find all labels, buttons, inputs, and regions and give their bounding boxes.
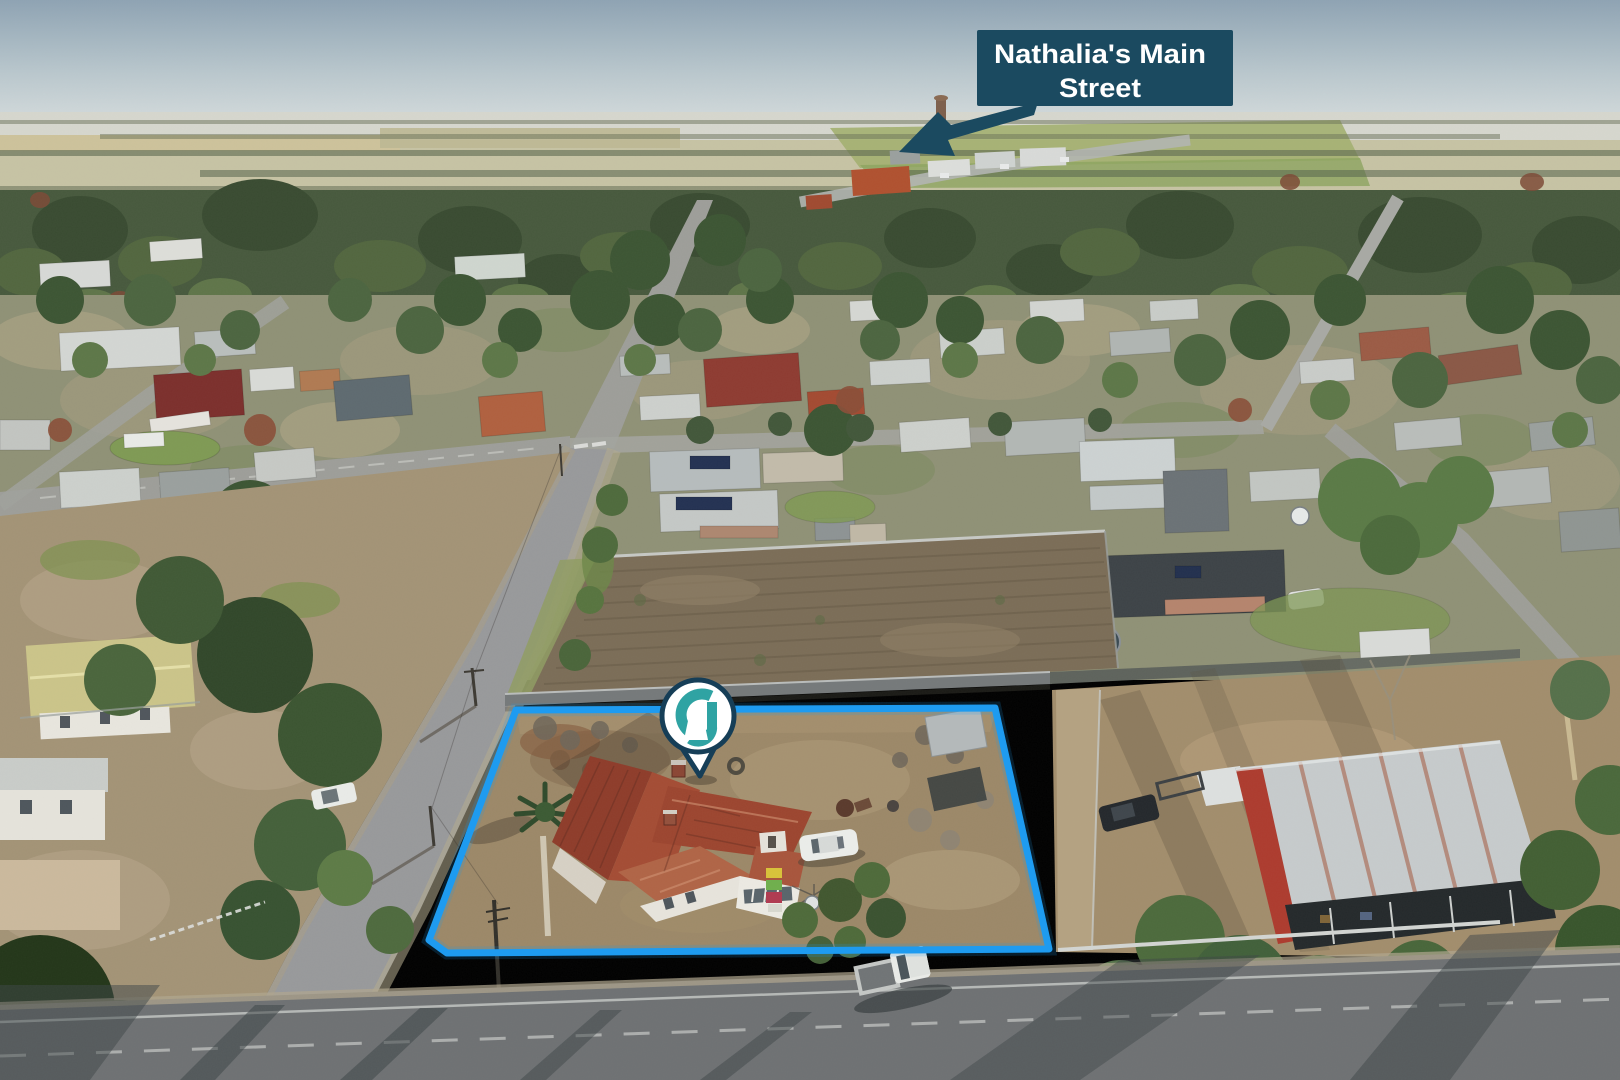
callout-text-line2: Street [1059, 73, 1141, 103]
aerial-photo: Nathalia's Main Street [0, 0, 1620, 1080]
aerial-photo-canvas: Nathalia's Main Street [0, 0, 1620, 1080]
photo-grain [0, 0, 1620, 1080]
callout-text-line1: Nathalia's Main [994, 39, 1206, 69]
